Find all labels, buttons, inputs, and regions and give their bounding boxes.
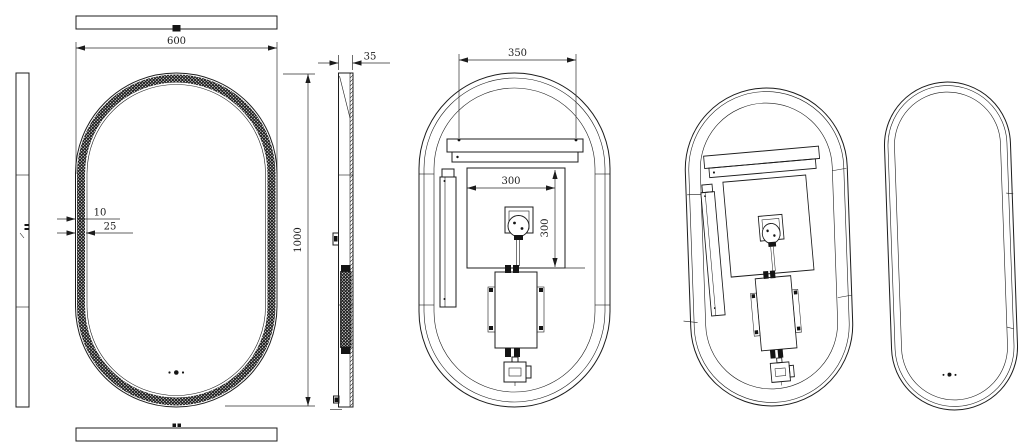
- seam-line: [838, 295, 852, 297]
- dim-backplate-height: 300: [540, 170, 585, 268]
- dim-hanger-bar: 350: [458, 48, 578, 141]
- side-profile-view: 35: [318, 52, 390, 410]
- dim-frame-lip-label: 10: [94, 208, 107, 219]
- left-side-profile-outline: [16, 73, 29, 407]
- top-detail-line: [340, 76, 351, 118]
- mirror-rim-line: [886, 84, 1016, 409]
- left-side-view: [16, 73, 29, 407]
- dim-backplate-height-label: 300: [540, 218, 551, 237]
- front-perspective-view: [882, 80, 1020, 412]
- dim-depth: 35: [318, 52, 390, 71]
- seam-line: [1007, 327, 1014, 329]
- driver-cap: [341, 347, 351, 354]
- hanger-bar: [447, 139, 583, 162]
- touch-sensor-module: [504, 357, 531, 386]
- front-view: 600 10 25 1000: [57, 36, 315, 407]
- technical-drawing-canvas: 600 10 25 1000: [0, 0, 1030, 446]
- back-assembly-copy: [698, 146, 839, 391]
- touch-sensor-dots: [168, 370, 184, 375]
- dim-depth-label: 35: [364, 52, 377, 63]
- bottom-view: [76, 424, 277, 442]
- bracket-mark: [25, 228, 30, 230]
- mirror-inner-edge: [87, 85, 266, 396]
- dim-hanger-bar-label: 350: [508, 48, 527, 59]
- hanger-clip: [173, 25, 181, 32]
- dim-frame-lip: 10: [57, 208, 120, 220]
- sensor-side-mark: [335, 398, 339, 403]
- detail-mark: [20, 233, 24, 238]
- dim-backplate-width-label: 300: [501, 176, 520, 187]
- dim-backplate-width: 300: [467, 176, 555, 188]
- led-driver-box: [488, 265, 544, 357]
- touch-sensor-dots: [942, 372, 956, 376]
- driver-side-section: [341, 272, 352, 348]
- bottom-profile-outline: [76, 428, 277, 441]
- power-cord: [517, 240, 520, 266]
- touch-sensor-mark: [173, 424, 177, 428]
- driver-cap: [341, 265, 351, 272]
- back-perspective-view: [676, 85, 856, 409]
- dim-overall-height-label: 1000: [293, 227, 304, 252]
- dim-overall-width-label: 600: [167, 36, 186, 47]
- bracket-mark: [25, 224, 30, 226]
- dim-led-band: 25: [57, 222, 133, 234]
- mirror-outer-edge: [882, 80, 1019, 412]
- mirror-inner-edge: [893, 90, 1010, 402]
- mirror-outer-edge: [76, 73, 278, 407]
- touch-sensor-mark: [178, 424, 182, 428]
- mounting-bracket: [440, 169, 456, 307]
- oval-mirror-drawing: 600 10 25 1000: [0, 0, 1030, 446]
- back-panel-hatch: [350, 74, 353, 407]
- dim-led-band-label: 25: [104, 222, 117, 233]
- back-view: 350: [419, 48, 610, 407]
- mid-bracket-mark: [334, 236, 338, 242]
- seam-line: [832, 168, 846, 170]
- top-view: [76, 16, 277, 32]
- power-socket: [505, 207, 533, 240]
- led-light-band: [81, 79, 272, 402]
